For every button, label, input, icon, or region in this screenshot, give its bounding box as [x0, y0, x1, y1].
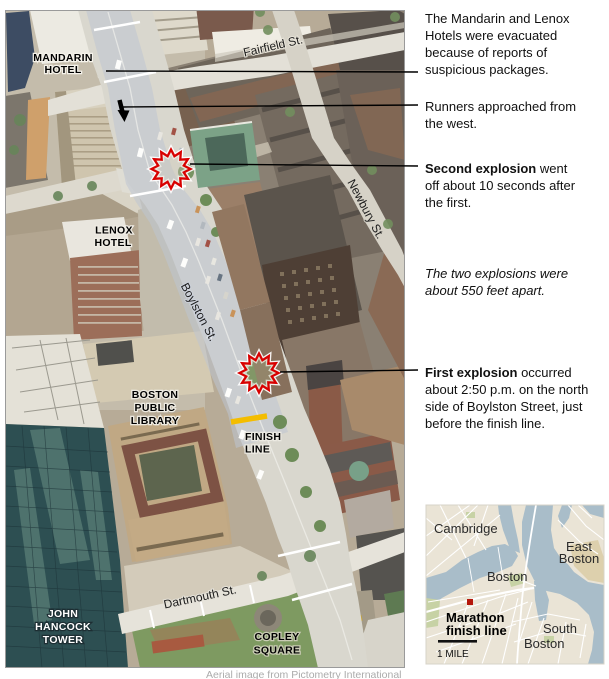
- svg-text:Cambridge: Cambridge: [434, 521, 498, 536]
- svg-text:South: South: [543, 621, 577, 636]
- svg-text:FINISH: FINISH: [245, 431, 281, 443]
- svg-text:Boston: Boston: [487, 569, 527, 584]
- svg-text:LENOX: LENOX: [95, 225, 133, 237]
- svg-text:COPLEY: COPLEY: [255, 631, 300, 643]
- svg-text:MANDARIN: MANDARIN: [33, 52, 93, 64]
- svg-text:JOHN: JOHN: [48, 608, 78, 620]
- svg-text:finish line: finish line: [446, 623, 507, 638]
- svg-text:Boston: Boston: [524, 636, 564, 651]
- svg-text:HOTEL: HOTEL: [44, 64, 81, 76]
- svg-text:BOSTON: BOSTON: [132, 389, 179, 401]
- svg-text:HANCOCK: HANCOCK: [35, 621, 91, 633]
- svg-text:Boston: Boston: [559, 551, 599, 566]
- svg-text:1 MILE: 1 MILE: [437, 649, 469, 660]
- svg-text:LINE: LINE: [245, 444, 270, 456]
- svg-text:PUBLIC: PUBLIC: [135, 402, 176, 414]
- svg-text:SQUARE: SQUARE: [254, 645, 301, 657]
- svg-text:HOTEL: HOTEL: [94, 237, 131, 249]
- svg-text:LIBRARY: LIBRARY: [131, 415, 179, 427]
- svg-text:TOWER: TOWER: [43, 634, 84, 646]
